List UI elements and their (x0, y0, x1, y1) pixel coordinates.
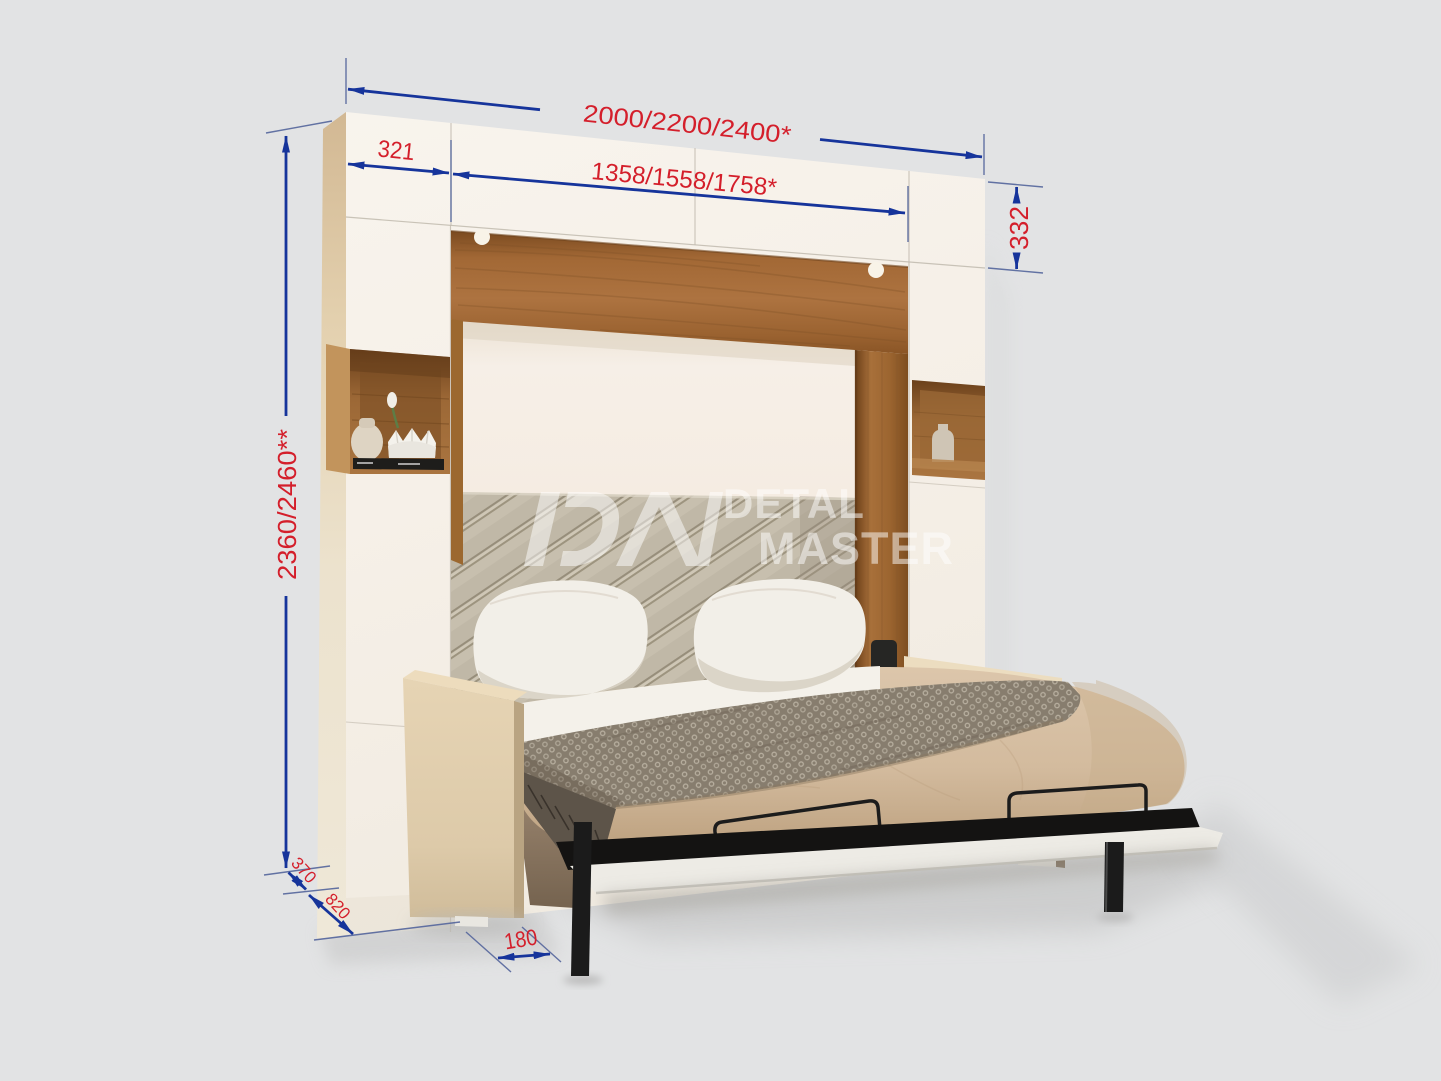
svg-text:2360/2460**: 2360/2460** (272, 429, 302, 580)
svg-text:332: 332 (1004, 206, 1034, 250)
svg-text:321: 321 (376, 135, 416, 166)
svg-text:DETAL: DETAL (723, 480, 865, 527)
svg-text:180: 180 (503, 925, 540, 955)
svg-text:MASTER: MASTER (758, 523, 954, 574)
